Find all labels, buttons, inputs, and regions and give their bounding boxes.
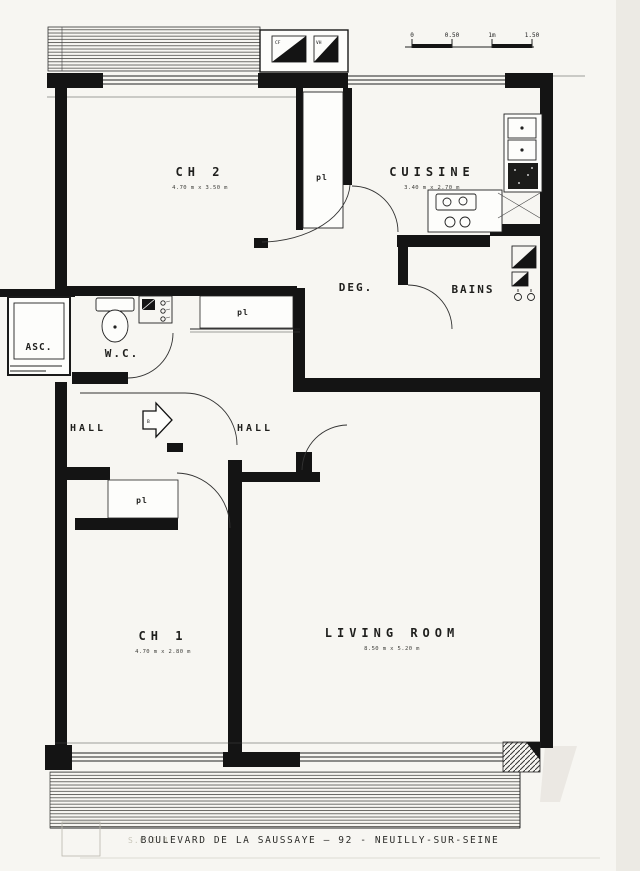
entrance-arrow-letter: B <box>147 419 150 425</box>
ch2-closet: pl <box>303 92 343 228</box>
room-label-living: LIVING ROOM <box>325 626 459 640</box>
top-balcony: CF VH <box>48 27 348 72</box>
room-label-hall-east: HALL <box>237 423 273 434</box>
scale-tick-0: 0 <box>410 32 414 39</box>
room-label-wc: W.C. <box>105 347 140 360</box>
room-label-ch2: CH 2 <box>176 165 225 179</box>
closet-label-corridor: pl <box>237 308 249 317</box>
room-label-cuisine: CUISINE <box>389 165 475 179</box>
footer-address: BOULEVARD DE LA SAUSSAYE — 92 - NEUILLY-… <box>141 835 500 846</box>
shaft-left-label: CF <box>275 40 281 46</box>
left-wall-upper <box>55 88 67 298</box>
room-label-deg: DEG. <box>339 281 374 294</box>
room-label-bains: BAINS <box>451 283 494 296</box>
room-dims-living: 8.50 m x 5.20 m <box>364 646 420 652</box>
left-wall-lower <box>55 382 67 757</box>
room-dims-ch1: 4.70 m x 2.80 m <box>135 649 191 655</box>
bottom-balcony <box>50 772 520 828</box>
room-dims-ch2: 4.70 m x 3.50 m <box>172 185 228 191</box>
scale-tick-1m: 1m <box>488 32 496 39</box>
room-label-asc: ASC. <box>26 342 53 353</box>
scale-tick-150: 1.50 <box>525 32 540 39</box>
room-dims-cuisine: 3.40 m x 2.70 m <box>404 185 460 191</box>
scale-tick-050: 0.50 <box>445 32 460 39</box>
kitchen-counter <box>428 190 502 232</box>
hall-closet: pl <box>108 480 178 518</box>
closet-label-ch2: pl <box>316 173 328 182</box>
room-label-ch1: CH 1 <box>139 629 188 643</box>
balcony-hatch <box>48 27 260 71</box>
shaft-right-label: VH <box>316 40 322 46</box>
closet-label-hall: pl <box>136 496 148 505</box>
scanned-floor-plan: CF VH 0 0.50 1m 1.50 <box>0 0 640 871</box>
elevator: ASC. <box>0 289 75 375</box>
appliance <box>508 163 538 189</box>
corridor-closet: pl <box>190 296 300 332</box>
toilet-tank <box>96 298 134 311</box>
scan-edge-shadow <box>616 0 640 871</box>
room-label-hall-west: HALL <box>70 423 106 434</box>
